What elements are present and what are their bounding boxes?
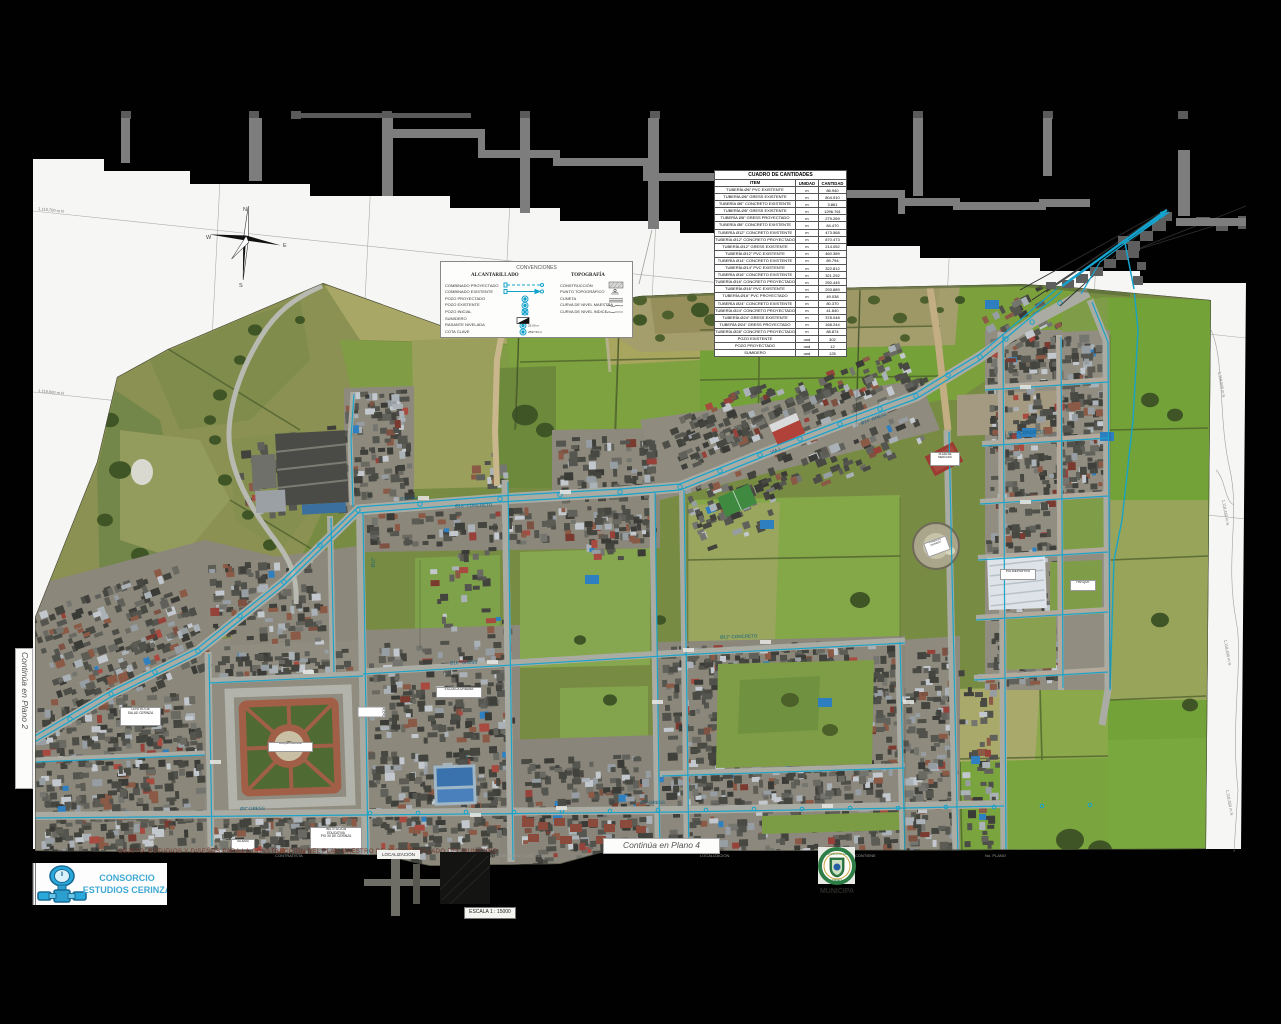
svg-text:CERINZA: CERINZA [829,879,845,883]
svg-text:N: N [243,207,247,213]
svg-text:E: E [283,243,287,249]
svg-text:MUNICIPIO DE: MUNICIPIO DE [827,852,848,856]
svg-text:W: W [206,235,212,241]
svg-text:Continúa en Plano 2: Continúa en Plano 2 [20,652,30,729]
svg-text:ESTUDIOS CERINZA: ESTUDIOS CERINZA [83,885,167,895]
svg-text:25.00 m: 25.00 m [528,324,539,328]
svg-text:2597.53 m: 2597.53 m [528,330,543,334]
svg-text:MUNICIPA: MUNICIPA [820,888,854,895]
svg-text:S: S [239,283,243,289]
svg-text:CONSORCIO: CONSORCIO [99,873,155,883]
